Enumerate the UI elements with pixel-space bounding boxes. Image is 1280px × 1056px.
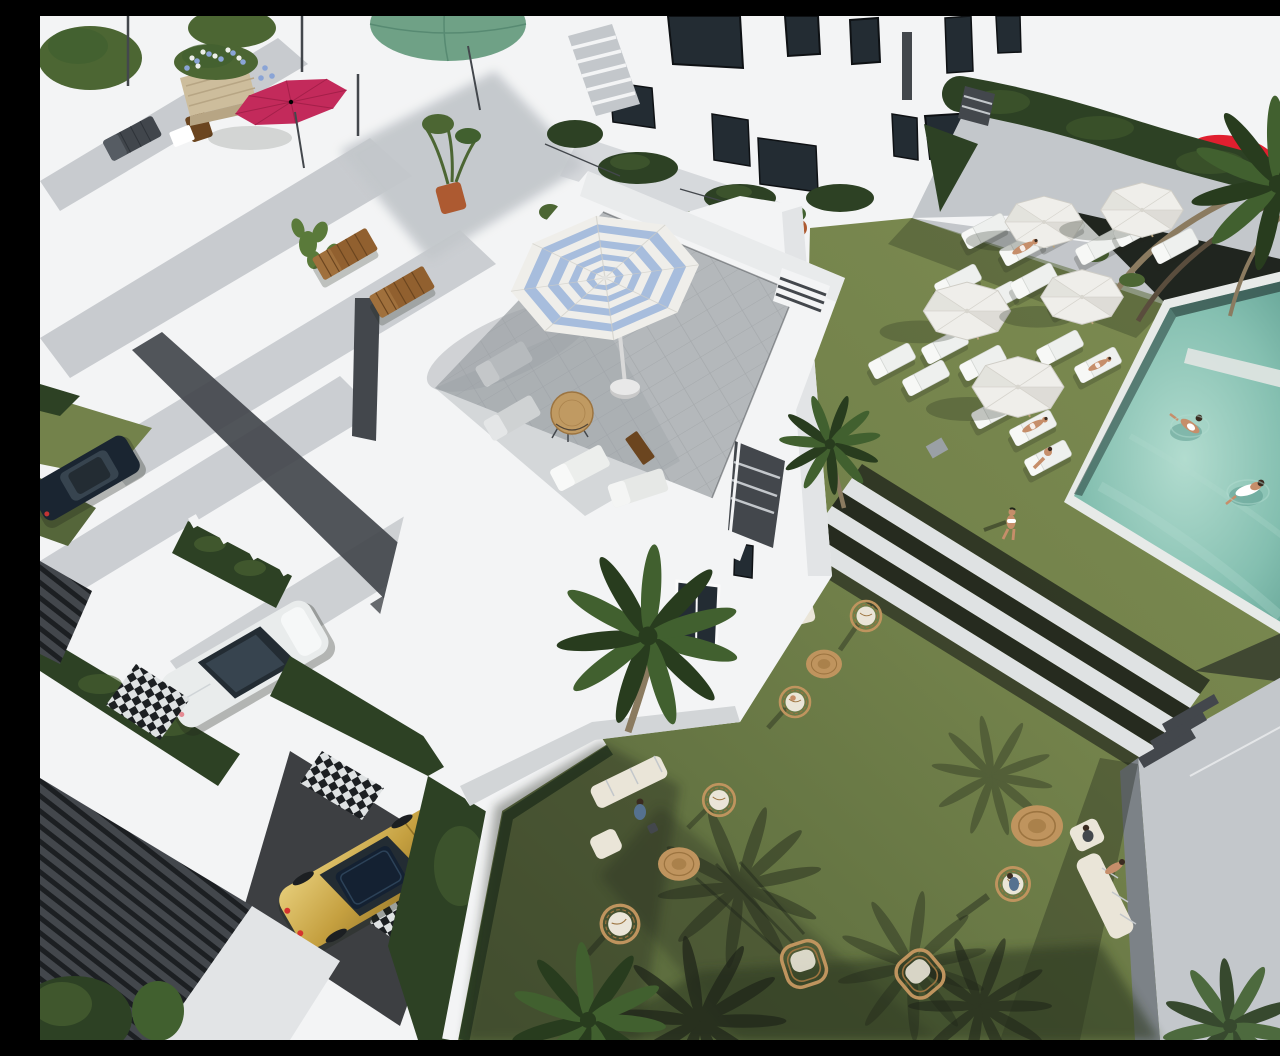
render-canvas — [40, 16, 1280, 1040]
shrub — [132, 981, 184, 1040]
architectural-render — [40, 16, 1280, 1040]
shrub — [48, 28, 108, 64]
building-gap — [352, 298, 380, 441]
